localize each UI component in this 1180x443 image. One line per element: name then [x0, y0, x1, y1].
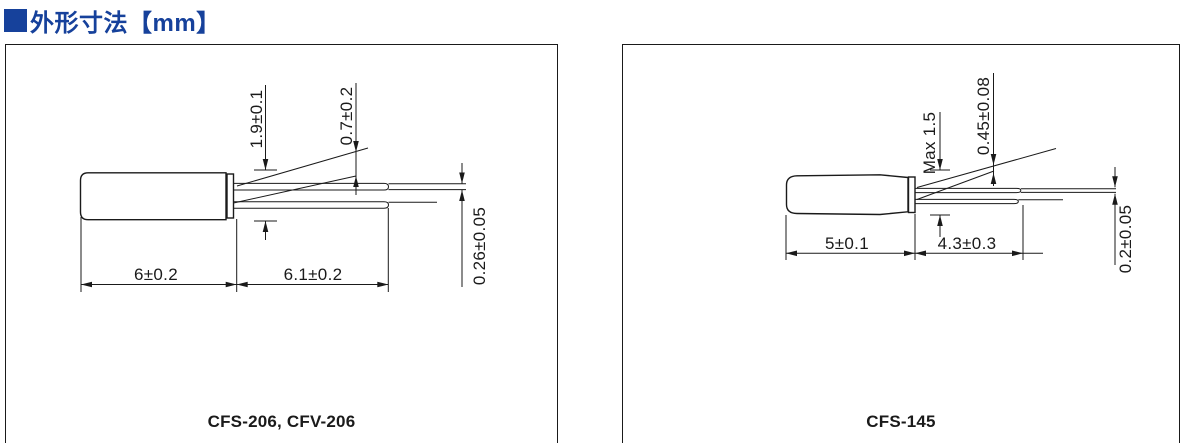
dim-label-lead-diameter: 0.45±0.08: [974, 77, 994, 155]
drawing-panel-cfs145: Max 1.5 0.45±0.08 0.2±0.05 5±0.1 4.3±0.3…: [622, 44, 1180, 443]
crystal-body: [787, 175, 909, 215]
drawing-panel-cfs206: 1.9±0.1 0.7±0.2 0.26±0.05 6±0.2 6.1±0.2 …: [5, 44, 558, 443]
arrow-down-icon: [459, 173, 465, 184]
dim-label-lead-length: 4.3±0.3: [938, 234, 997, 254]
arrow-down-icon: [263, 159, 269, 170]
dim-label-seal-height: Max 1.5: [920, 112, 940, 175]
arrow-right-icon: [377, 282, 388, 288]
lead-upper: [915, 188, 1021, 192]
arrow-down-icon: [991, 154, 997, 165]
section-marker-icon: [4, 9, 27, 32]
section-header: 外形寸法【mm】: [4, 3, 221, 38]
arrow-up-icon: [353, 176, 359, 187]
dim-label-body-length: 6±0.2: [134, 265, 178, 285]
extension-lines-leads: [389, 184, 467, 202]
crystal-body: [81, 173, 227, 220]
dim-label-lead-length: 6.1±0.2: [284, 265, 343, 285]
lead-lower: [234, 202, 389, 208]
dim-label-seal-height: 1.9±0.1: [247, 90, 267, 149]
dim-label-lead-diameter: 0.7±0.2: [337, 87, 357, 146]
arrow-up-icon: [263, 221, 269, 232]
arrow-right-icon: [1012, 251, 1023, 257]
crystal-end-seal: [227, 174, 234, 218]
drawing-caption: CFS-206, CFV-206: [6, 412, 557, 432]
dim-label-body-length: 5±0.1: [825, 234, 869, 254]
arrow-left-icon: [81, 282, 92, 288]
arrow-up-icon: [937, 215, 943, 226]
dim-label-lead-thickness: 0.2±0.05: [1116, 205, 1136, 273]
section-title: 外形寸法【mm】: [30, 3, 221, 38]
drawing-caption: CFS-145: [623, 412, 1179, 432]
dim-label-lead-thickness: 0.26±0.05: [470, 207, 490, 285]
extension-lines-leads: [1018, 189, 1116, 200]
lead-upper: [234, 183, 389, 190]
arrow-up-icon: [459, 190, 465, 201]
arrow-up-icon: [1112, 194, 1118, 205]
arrow-left-icon: [786, 251, 797, 257]
arrow-left-icon: [915, 251, 926, 257]
arrow-up-icon: [991, 173, 997, 184]
lead-lower: [915, 199, 1018, 203]
arrow-right-icon: [904, 251, 915, 257]
crystal-end-seal: [909, 177, 916, 213]
cfs145-drawing: [623, 45, 1176, 443]
arrow-down-icon: [1112, 176, 1118, 187]
arrow-left-icon: [237, 282, 248, 288]
arrow-right-icon: [226, 282, 237, 288]
datasheet-outline-drawing-section: 外形寸法【mm】: [0, 0, 1180, 443]
